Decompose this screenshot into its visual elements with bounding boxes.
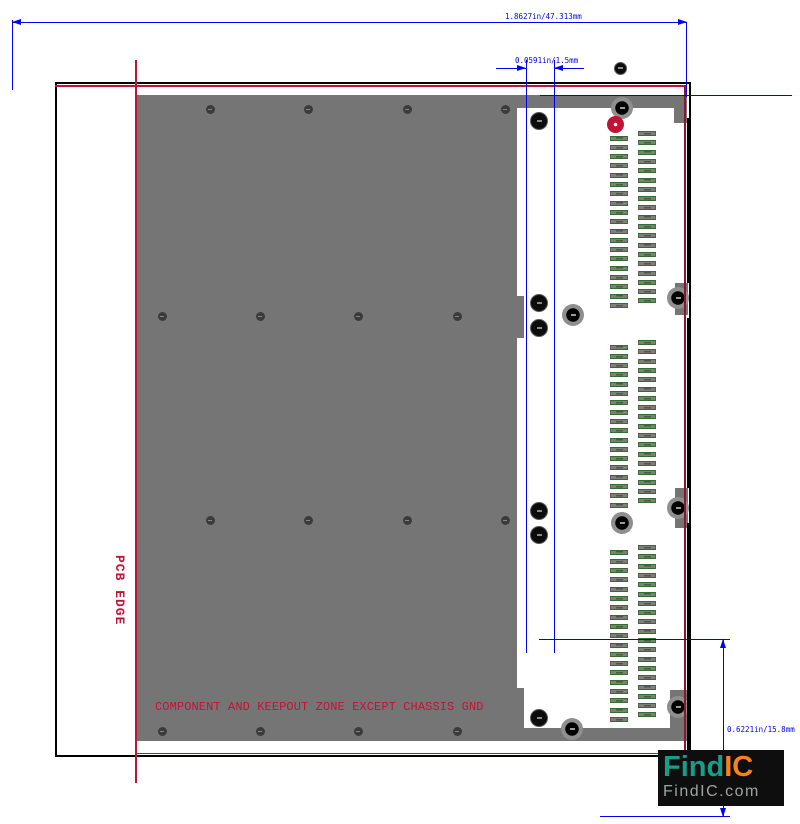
pcb-edge-line bbox=[135, 753, 686, 755]
dimension-arrow bbox=[678, 19, 687, 25]
dimension-line bbox=[12, 22, 686, 23]
logo-ic-text: IC bbox=[724, 751, 753, 783]
dimension-line bbox=[12, 20, 13, 90]
component-outline-rect bbox=[55, 82, 691, 757]
keepout-zone-label: COMPONENT AND KEEPOUT ZONE EXCEPT CHASSI… bbox=[155, 700, 484, 714]
dimension-line bbox=[600, 816, 730, 817]
pcb-edge-line bbox=[55, 85, 686, 87]
dimension-arrow bbox=[554, 65, 563, 71]
through-hole bbox=[614, 62, 627, 75]
pcb-edge-line bbox=[135, 60, 137, 783]
pcb-footprint-drawing: 1.8627in/47.313mm 0.0591in/1.5mm 0.6221i… bbox=[0, 0, 800, 824]
dimension-line bbox=[554, 60, 555, 653]
dimension-line bbox=[539, 639, 730, 640]
pitch-dimension-label: 0.0591in/1.5mm bbox=[515, 56, 578, 65]
dimension-line bbox=[686, 22, 687, 97]
dimension-line bbox=[526, 60, 527, 653]
top-dimension-label: 1.8627in/47.313mm bbox=[505, 12, 582, 21]
findic-logo-wordmark: FindIC bbox=[663, 751, 780, 784]
right-dimension-label: 0.6221in/15.8mm bbox=[727, 725, 795, 734]
dimension-arrow bbox=[720, 808, 726, 817]
findic-logo-domain: FindIC.com bbox=[663, 784, 780, 800]
dimension-arrow bbox=[720, 639, 726, 648]
dimension-line bbox=[540, 95, 792, 96]
pcb-edge-line bbox=[684, 85, 686, 754]
logo-find-text: Find bbox=[663, 751, 724, 783]
dimension-arrow bbox=[517, 65, 526, 71]
dimension-arrow bbox=[12, 19, 21, 25]
pcb-edge-label: PCB EDGE bbox=[112, 555, 127, 625]
findic-logo[interactable]: FindIC FindIC.com bbox=[658, 750, 784, 806]
